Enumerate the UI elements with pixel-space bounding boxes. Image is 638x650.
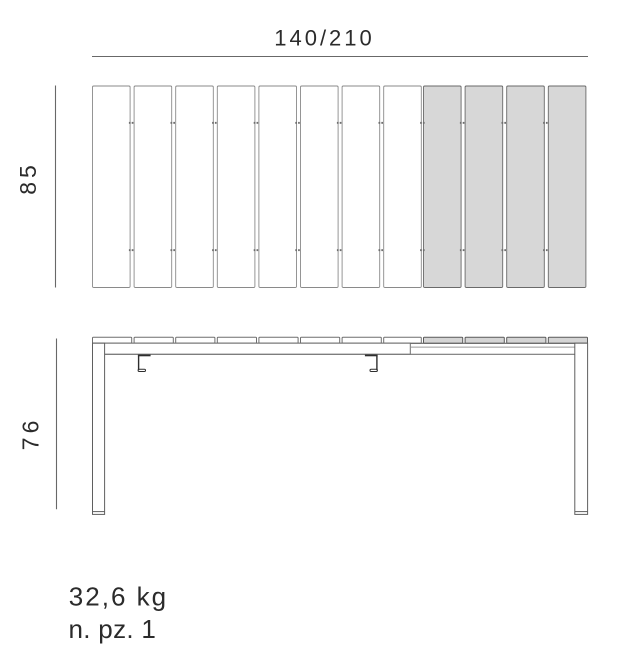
svg-text:76: 76 xyxy=(18,417,44,451)
svg-text:32,6 kg: 32,6 kg xyxy=(69,582,168,612)
svg-text:140/210: 140/210 xyxy=(274,26,375,51)
svg-text:85: 85 xyxy=(15,161,41,195)
svg-text:n. pz. 1: n. pz. 1 xyxy=(69,614,157,644)
